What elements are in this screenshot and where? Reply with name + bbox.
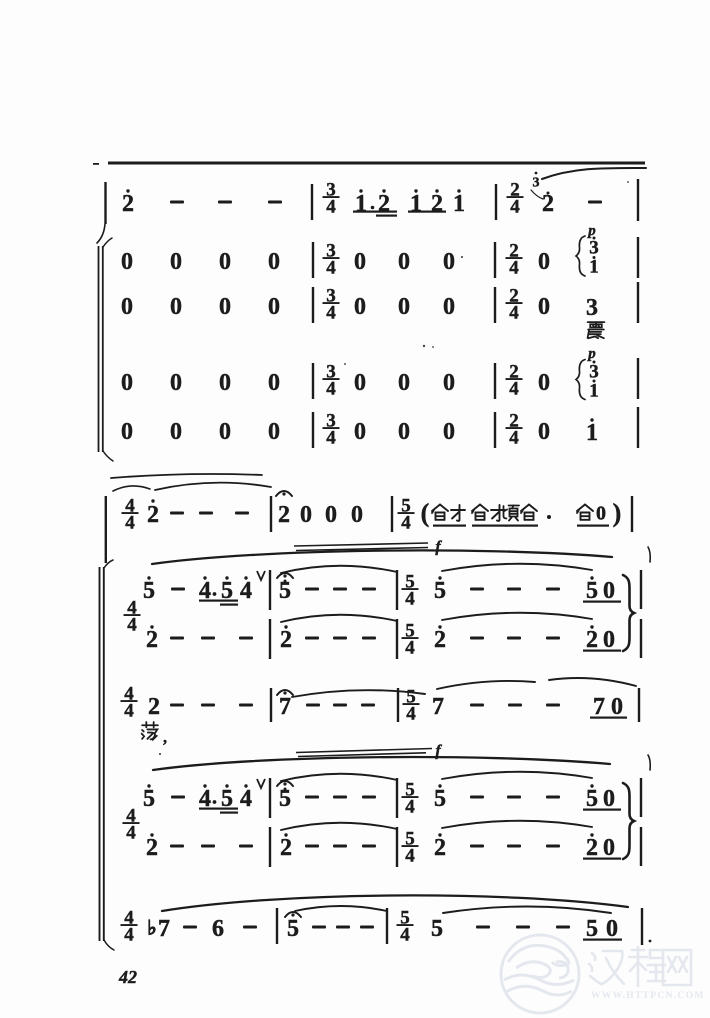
- svg-text:4: 4: [405, 796, 415, 817]
- svg-text:4: 4: [509, 427, 519, 448]
- svg-text:0: 0: [170, 294, 182, 320]
- svg-text:5: 5: [586, 786, 598, 812]
- svg-text:3: 3: [589, 361, 599, 382]
- svg-text:5: 5: [279, 578, 291, 604]
- svg-text:5: 5: [434, 786, 446, 812]
- svg-text:0: 0: [354, 370, 366, 396]
- svg-text:2: 2: [378, 191, 390, 217]
- svg-text:5: 5: [279, 786, 291, 812]
- svg-text:0: 0: [443, 370, 455, 396]
- svg-text:4: 4: [127, 614, 137, 635]
- svg-text:0: 0: [121, 249, 133, 275]
- svg-text:0: 0: [300, 502, 312, 528]
- svg-text:4: 4: [125, 512, 135, 533]
- svg-text:(: (: [421, 499, 430, 528]
- svg-text:0: 0: [219, 249, 231, 275]
- svg-text:0: 0: [538, 419, 550, 445]
- svg-text:0: 0: [170, 370, 182, 396]
- svg-text:4: 4: [240, 786, 252, 812]
- svg-text:0: 0: [443, 419, 455, 445]
- svg-text:1: 1: [410, 191, 422, 217]
- svg-text:0: 0: [398, 294, 410, 320]
- svg-text:): ): [613, 499, 622, 528]
- svg-text:2: 2: [434, 835, 446, 861]
- svg-text:0: 0: [398, 370, 410, 396]
- svg-text:0: 0: [268, 419, 280, 445]
- svg-text:2: 2: [278, 502, 290, 528]
- svg-text:4: 4: [326, 378, 336, 399]
- svg-text:0: 0: [538, 249, 550, 275]
- svg-text:5: 5: [434, 578, 446, 604]
- svg-text:0: 0: [351, 502, 363, 528]
- svg-text:0: 0: [398, 419, 410, 445]
- svg-text:4: 4: [326, 196, 336, 217]
- svg-text:0: 0: [121, 419, 133, 445]
- svg-text:3: 3: [586, 295, 598, 321]
- svg-text:1: 1: [589, 380, 599, 401]
- svg-text:0: 0: [603, 835, 615, 861]
- svg-text:1: 1: [589, 256, 599, 277]
- svg-text:4: 4: [405, 637, 415, 658]
- svg-text:0: 0: [170, 249, 182, 275]
- svg-text:,: ,: [163, 729, 167, 746]
- svg-text:5: 5: [431, 916, 443, 942]
- svg-text:5: 5: [586, 578, 598, 604]
- svg-text:1: 1: [586, 420, 598, 446]
- svg-text:5: 5: [586, 916, 598, 942]
- svg-text:0: 0: [354, 419, 366, 445]
- svg-text:0: 0: [603, 578, 615, 604]
- svg-text:0: 0: [538, 294, 550, 320]
- svg-text:WWW.HTTPCN.COM: WWW.HTTPCN.COM: [591, 990, 705, 1001]
- svg-text:2: 2: [586, 835, 598, 861]
- svg-text:0: 0: [606, 916, 618, 942]
- svg-text:0: 0: [268, 370, 280, 396]
- svg-text:1: 1: [355, 191, 367, 217]
- svg-text:4: 4: [126, 822, 136, 843]
- svg-text:5: 5: [143, 578, 155, 604]
- svg-text:3: 3: [533, 176, 540, 191]
- svg-text:2: 2: [147, 502, 159, 528]
- svg-text:3: 3: [589, 237, 599, 258]
- svg-text:0: 0: [268, 249, 280, 275]
- svg-text:0: 0: [325, 502, 337, 528]
- svg-text:6: 6: [212, 916, 224, 942]
- svg-text:0: 0: [596, 503, 606, 525]
- svg-text:4: 4: [326, 427, 336, 448]
- svg-text:0: 0: [443, 249, 455, 275]
- svg-text:2: 2: [122, 191, 134, 217]
- svg-text:0: 0: [603, 627, 615, 653]
- svg-text:4: 4: [509, 378, 519, 399]
- svg-text:5: 5: [143, 786, 155, 812]
- svg-text:4: 4: [326, 302, 336, 323]
- svg-text:2: 2: [431, 191, 443, 217]
- svg-text:2: 2: [146, 835, 158, 861]
- svg-text:2: 2: [280, 627, 292, 653]
- svg-text:4: 4: [124, 924, 134, 945]
- svg-text:1: 1: [453, 191, 465, 217]
- svg-text:♭: ♭: [147, 918, 156, 940]
- svg-text:7: 7: [593, 694, 605, 720]
- svg-text:0: 0: [219, 419, 231, 445]
- svg-text:0: 0: [121, 294, 133, 320]
- svg-text:7: 7: [279, 694, 291, 720]
- svg-text:0: 0: [611, 694, 623, 720]
- svg-text:4: 4: [405, 588, 415, 609]
- svg-text:4: 4: [509, 302, 519, 323]
- svg-text:4: 4: [400, 924, 410, 945]
- svg-text:0: 0: [398, 249, 410, 275]
- svg-text:42: 42: [118, 967, 137, 987]
- svg-text:2: 2: [280, 835, 292, 861]
- svg-text:4: 4: [405, 845, 415, 866]
- svg-text:2: 2: [586, 627, 598, 653]
- svg-text:7: 7: [158, 916, 170, 942]
- svg-text:4: 4: [406, 703, 416, 724]
- svg-text:2: 2: [434, 627, 446, 653]
- svg-text:4: 4: [326, 257, 336, 278]
- svg-text:2: 2: [148, 694, 160, 720]
- svg-text:0: 0: [603, 786, 615, 812]
- svg-text:4: 4: [240, 578, 252, 604]
- svg-text:p: p: [586, 346, 596, 362]
- svg-text:0: 0: [354, 294, 366, 320]
- svg-text:4: 4: [510, 196, 520, 217]
- svg-text:4: 4: [401, 512, 411, 533]
- svg-text:0: 0: [268, 294, 280, 320]
- svg-text:7: 7: [432, 694, 444, 720]
- svg-text:2: 2: [146, 627, 158, 653]
- svg-text:4: 4: [509, 257, 519, 278]
- svg-text:0: 0: [538, 370, 550, 396]
- svg-text:5: 5: [287, 916, 299, 942]
- svg-text:0: 0: [219, 294, 231, 320]
- svg-text:0: 0: [443, 294, 455, 320]
- svg-text:0: 0: [219, 370, 231, 396]
- svg-text:0: 0: [121, 370, 133, 396]
- svg-text:2: 2: [542, 191, 554, 217]
- svg-text:0: 0: [170, 419, 182, 445]
- svg-text:4: 4: [124, 700, 134, 721]
- svg-text:0: 0: [354, 249, 366, 275]
